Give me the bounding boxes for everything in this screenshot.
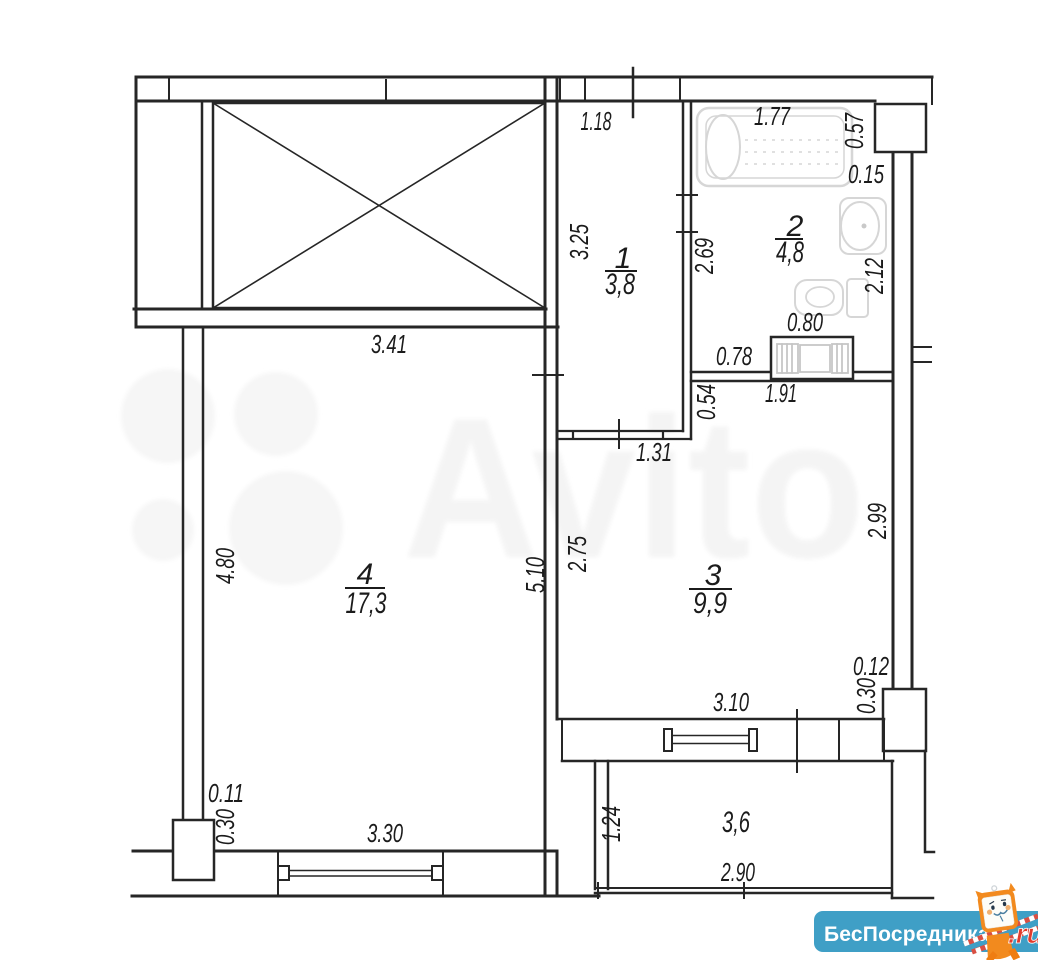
svg-text:0.15: 0.15 xyxy=(848,159,884,189)
svg-text:Avito: Avito xyxy=(403,377,865,600)
svg-text:1.18: 1.18 xyxy=(581,106,612,136)
svg-text:2.90: 2.90 xyxy=(720,857,755,887)
svg-text:1.77: 1.77 xyxy=(754,101,791,131)
svg-text:3.41: 3.41 xyxy=(371,329,407,359)
svg-text:0.57: 0.57 xyxy=(839,112,869,149)
svg-text:4,8: 4,8 xyxy=(776,236,804,269)
svg-text:1.31: 1.31 xyxy=(636,437,672,467)
svg-text:5.10: 5.10 xyxy=(520,557,550,593)
svg-text:3,6: 3,6 xyxy=(722,806,750,839)
svg-text:1.91: 1.91 xyxy=(765,378,797,408)
svg-text:.ru: .ru xyxy=(1008,918,1038,949)
svg-text:2.75: 2.75 xyxy=(562,536,592,573)
svg-text:9,9: 9,9 xyxy=(693,587,727,620)
svg-text:2.12: 2.12 xyxy=(859,258,889,295)
svg-text:17,3: 17,3 xyxy=(346,587,387,620)
svg-text:0.80: 0.80 xyxy=(787,307,823,337)
svg-text:0.30: 0.30 xyxy=(851,678,881,714)
svg-text:0.12: 0.12 xyxy=(853,651,889,681)
svg-text:2.69: 2.69 xyxy=(689,238,719,275)
svg-text:3.10: 3.10 xyxy=(713,687,749,717)
svg-text:4.80: 4.80 xyxy=(210,548,240,584)
svg-text:1.24: 1.24 xyxy=(596,806,626,842)
svg-text:0.30: 0.30 xyxy=(210,809,240,845)
svg-text:3.30: 3.30 xyxy=(367,818,403,848)
svg-text:0.78: 0.78 xyxy=(716,341,752,371)
svg-text:0.11: 0.11 xyxy=(208,778,244,808)
svg-text:2.99: 2.99 xyxy=(862,503,892,540)
svg-text:0.54: 0.54 xyxy=(691,384,721,420)
svg-text:3,8: 3,8 xyxy=(605,268,635,301)
svg-text:3.25: 3.25 xyxy=(564,224,594,260)
